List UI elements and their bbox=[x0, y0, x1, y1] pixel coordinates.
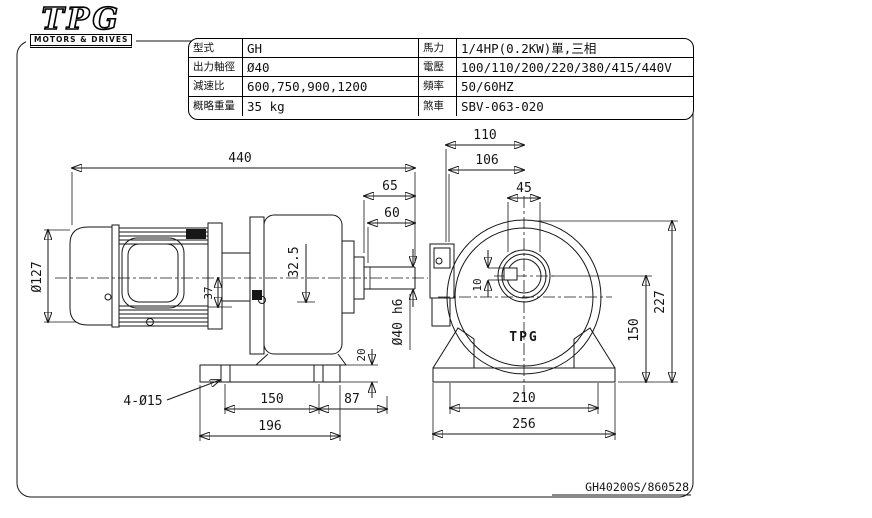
fan-cover-ring bbox=[112, 225, 119, 327]
dim-base-thickness: 20 bbox=[355, 348, 368, 361]
spec-value-voltage: 100/110/200/220/380/415/440V bbox=[457, 58, 693, 77]
spec-value-freq: 50/60HZ bbox=[457, 77, 693, 96]
dim-shaft-diameter: Ø40 h6 bbox=[391, 299, 406, 346]
drawing-number: GH40200S/860528 bbox=[585, 480, 689, 494]
spec-label-brake: 煞車 bbox=[419, 97, 457, 116]
dim-base-width: 256 bbox=[512, 417, 535, 432]
front-view: TPG 110 106 45 10 bbox=[430, 128, 678, 440]
gear-housing bbox=[264, 215, 342, 354]
dim-45: 45 bbox=[516, 181, 532, 196]
spec-value-weight: 35 kg bbox=[243, 97, 419, 116]
left-foot bbox=[433, 328, 474, 368]
motor-body bbox=[119, 228, 208, 326]
terminal-box bbox=[430, 244, 454, 326]
spec-label-voltage: 電壓 bbox=[419, 58, 457, 77]
dim-106: 106 bbox=[475, 153, 498, 168]
dim-60: 60 bbox=[384, 206, 400, 221]
spec-value-hp: 1/4HP(0.2KW)單,三相 bbox=[457, 39, 693, 58]
screw-icon bbox=[105, 294, 111, 300]
brand-logo: TPG MOTORS & DRIVES bbox=[26, 6, 136, 48]
dim-base-length: 196 bbox=[258, 419, 281, 434]
title-block: GH40200S/860528 bbox=[552, 480, 691, 495]
pedestal bbox=[256, 354, 346, 365]
side-view: 440 65 60 Ø127 37 32.5 Ø40 h6 bbox=[30, 151, 428, 441]
motor-frame-inner bbox=[128, 244, 178, 302]
dim-overall-length: 440 bbox=[228, 151, 251, 166]
housing-step bbox=[342, 241, 354, 313]
front-view-dimensions: 110 106 45 10 227 150 210 bbox=[433, 128, 678, 440]
spec-label-weight: 概略重量 bbox=[189, 97, 243, 116]
seal-block bbox=[252, 290, 262, 300]
screw-icon bbox=[436, 258, 442, 264]
right-foot bbox=[574, 328, 615, 368]
gear-flange bbox=[250, 217, 264, 354]
dim-center-height: 150 bbox=[627, 318, 642, 341]
dim-mounting-holes: 4-Ø15 bbox=[123, 394, 162, 409]
spec-value-brake: SBV-063-020 bbox=[457, 97, 693, 116]
keyway bbox=[504, 268, 517, 280]
dim-overall-height: 227 bbox=[653, 290, 668, 313]
spec-label-hp: 馬力 bbox=[419, 39, 457, 58]
spec-label-shaft: 出力軸徑 bbox=[189, 58, 243, 77]
dim-65: 65 bbox=[382, 179, 398, 194]
dim-keyway: 10 bbox=[471, 278, 484, 291]
spec-label-model: 型式 bbox=[189, 39, 243, 58]
adapter-plate bbox=[208, 223, 222, 329]
dim-hole-to-face: 87 bbox=[344, 392, 360, 407]
spec-value-ratio: 600,750,900,1200 bbox=[243, 77, 419, 96]
input-boss bbox=[222, 253, 250, 301]
spec-value-shaft: Ø40 bbox=[243, 58, 419, 77]
brand-logo-tagline: MOTORS & DRIVES bbox=[30, 34, 132, 48]
motor-frame-outer bbox=[122, 238, 184, 308]
spec-table: 型式 GH 馬力 1/4HP(0.2KW)單,三相 出力軸徑 Ø40 電壓 10… bbox=[188, 38, 694, 120]
spec-value-model: GH bbox=[243, 39, 419, 58]
base-holes-side bbox=[221, 365, 323, 382]
dim-110: 110 bbox=[473, 128, 496, 143]
dim-hole-spacing: 150 bbox=[260, 392, 283, 407]
spec-label-freq: 頻率 bbox=[419, 77, 457, 96]
case-logo-text: TPG bbox=[509, 330, 538, 345]
dim-motor-diameter: Ø127 bbox=[30, 261, 45, 292]
engineering-drawing-page: { "logo": { "brand": "TPG", "tagline": "… bbox=[0, 0, 872, 518]
brand-logo-text: TPG bbox=[30, 6, 132, 34]
fan-cover bbox=[70, 227, 112, 325]
dim-37: 37 bbox=[202, 286, 215, 299]
spec-label-ratio: 減速比 bbox=[189, 77, 243, 96]
nameplate-block bbox=[186, 229, 206, 239]
dim-32-5: 32.5 bbox=[287, 246, 302, 277]
dim-foot-hole-spacing: 210 bbox=[512, 391, 535, 406]
